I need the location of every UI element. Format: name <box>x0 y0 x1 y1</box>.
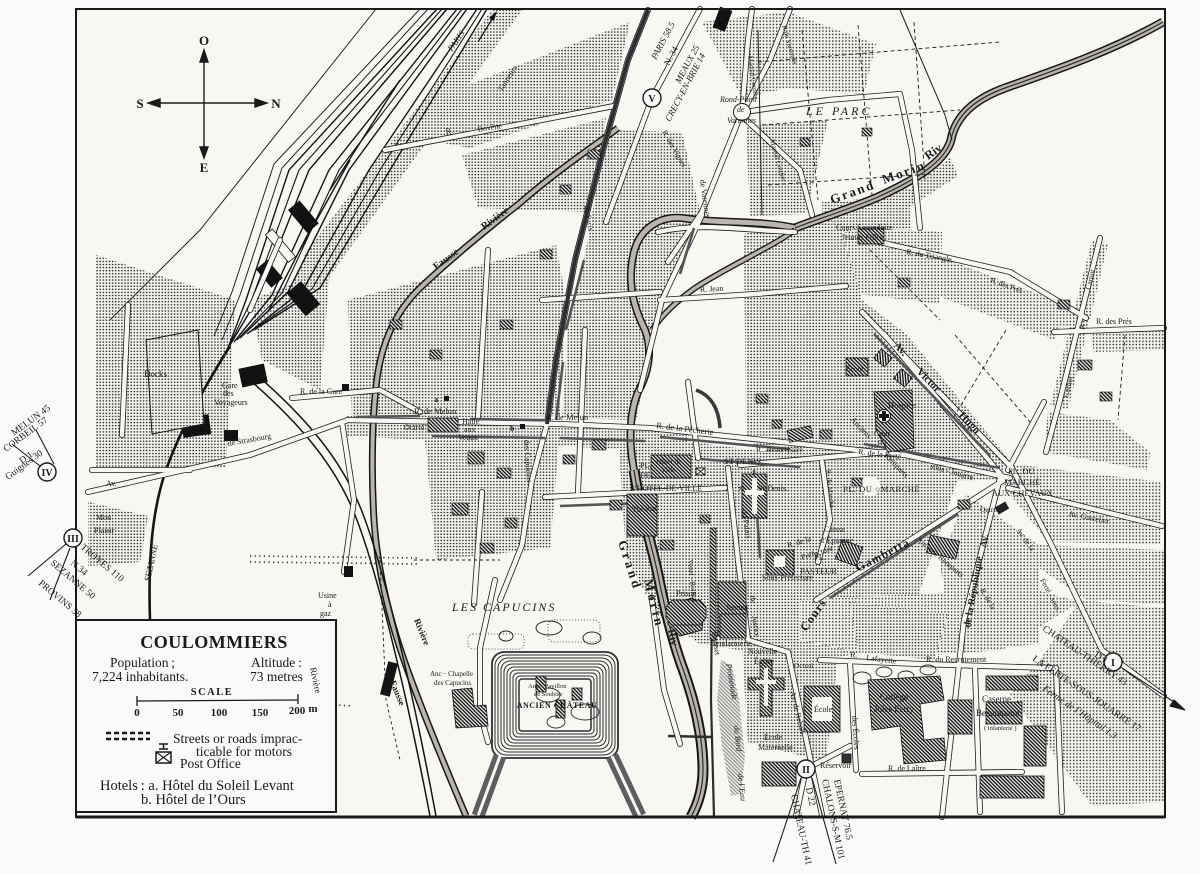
svg-text:St-Denis.: St-Denis. <box>758 484 788 493</box>
svg-text:R.: R. <box>445 126 454 136</box>
svg-text:ST DENIS: ST DENIS <box>724 456 761 466</box>
svg-text:à: à <box>328 600 332 609</box>
svg-text:E: E <box>200 160 209 175</box>
svg-text:150: 150 <box>252 707 269 719</box>
svg-text:Av.: Av. <box>106 479 117 488</box>
svg-text:III: III <box>67 534 79 545</box>
svg-text:Hospice: Hospice <box>888 400 916 410</box>
svg-text:R. des Prés: R. des Prés <box>1096 317 1132 326</box>
svg-text:Caisse: Caisse <box>824 525 845 534</box>
svg-text:200: 200 <box>289 705 306 717</box>
svg-text:Justice: Justice <box>726 603 748 612</box>
svg-text:Réservoir: Réservoir <box>820 761 851 770</box>
svg-text:IV: IV <box>41 468 53 479</box>
svg-text:b. Hôtel de l’Ours: b. Hôtel de l’Ours <box>141 792 246 808</box>
svg-text:R...Beaurepaire: R...Beaurepaire <box>756 445 804 454</box>
svg-text:gaz: gaz <box>320 609 332 618</box>
svg-text:du: du <box>878 437 886 446</box>
svg-text:Théâtre: Théâtre <box>632 504 657 514</box>
svg-text:Docks: Docks <box>144 369 167 379</box>
svg-text:Nouvelle: Nouvelle <box>748 647 778 656</box>
svg-text:Mon: Mon <box>96 513 111 522</box>
svg-text:R. de Laître: R. de Laître <box>888 764 926 773</box>
svg-text:Jeunes Filles: Jeunes Filles <box>842 233 883 242</box>
svg-text:Plaisir: Plaisir <box>94 526 115 535</box>
svg-text:Anc·· Chapelle: Anc·· Chapelle <box>430 670 473 678</box>
svg-text:LES CAPUCINS: LES CAPUCINS <box>451 600 556 614</box>
svg-text:ANCIEN CHÂTEAU: ANCIEN CHÂTEAU <box>517 700 598 710</box>
svg-text:50: 50 <box>173 707 185 719</box>
svg-text:( infanterie ): ( infanterie ) <box>984 725 1016 732</box>
svg-text:de: de <box>737 105 745 114</box>
svg-text:R. Jean: R. Jean <box>700 284 724 294</box>
svg-text:Église: Église <box>754 656 774 666</box>
svg-text:DE: DE <box>640 471 651 480</box>
svg-text:Jules Ferry: Jules Ferry <box>874 704 914 714</box>
svg-text:Octroi: Octroi <box>794 661 813 670</box>
svg-text:Post Office: Post Office <box>180 756 241 771</box>
svg-text:R. du Recrutement: R. du Recrutement <box>926 655 987 664</box>
svg-text:Veaux: Veaux <box>458 433 478 442</box>
svg-text:Collège: Collège <box>880 692 908 702</box>
svg-text:N: N <box>271 96 281 111</box>
svg-text:MARCHÉ: MARCHÉ <box>1004 477 1040 487</box>
svg-text:Ville: Ville <box>661 465 676 474</box>
svg-text:7,224 inhabitants.: 7,224 inhabitants. <box>92 669 188 684</box>
svg-text:Beaurepaire: Beaurepaire <box>976 708 1019 718</box>
svg-text:LE PARC: LE PARC <box>805 104 872 118</box>
svg-text:Sous-Préfecture: Sous-Préfecture <box>762 573 814 582</box>
svg-text:PL.: PL. <box>640 461 651 470</box>
svg-text:d’Épargne: d’Épargne <box>820 535 854 545</box>
svg-text:PL. DU ○MARCHÉ: PL. DU ○MARCHÉ <box>843 484 920 494</box>
svg-text:R.: R. <box>736 485 746 494</box>
svg-text:S: S <box>136 96 143 111</box>
svg-text:R. de la Gare: R. de la Gare <box>300 387 343 396</box>
svg-text:Population ;: Population ; <box>110 655 175 670</box>
svg-text:Voyageurs: Voyageurs <box>214 398 248 407</box>
svg-text:École: École <box>764 732 783 742</box>
svg-text:des: des <box>223 389 234 398</box>
svg-text:École: École <box>814 704 833 714</box>
svg-text:R. de Melun: R. de Melun <box>414 406 457 416</box>
svg-text:Anc·· Pavillon: Anc·· Pavillon <box>528 683 567 690</box>
svg-text:0: 0 <box>134 707 140 719</box>
svg-text:Caserne: Caserne <box>982 694 1011 704</box>
svg-text:PL. DU: PL. DU <box>1008 466 1034 476</box>
svg-text:100: 100 <box>211 707 228 719</box>
svg-text:Maternelle: Maternelle <box>758 743 793 752</box>
svg-text:O: O <box>199 33 209 48</box>
svg-text:Altitude :: Altitude : <box>251 655 302 670</box>
svg-text:AUX CHEVAUX: AUX CHEVAUX <box>992 488 1053 498</box>
svg-text:COULOMMIERS: COULOMMIERS <box>140 632 288 652</box>
svg-text:L’HOTEL-DE-VILLE: L’HOTEL-DE-VILLE <box>630 484 702 493</box>
svg-text:Varennes: Varennes <box>727 116 756 125</box>
svg-text:École: École <box>846 363 864 373</box>
svg-text:V: V <box>648 94 656 105</box>
svg-text:R. de Melun: R. de Melun <box>546 412 589 422</box>
svg-text:b: b <box>510 424 515 433</box>
svg-text:a: a <box>434 395 438 404</box>
svg-text:Octroi: Octroi <box>404 423 425 432</box>
svg-text:Octroi: Octroi <box>980 505 999 514</box>
svg-text:Cours Secondaire: Cours Secondaire <box>836 223 893 232</box>
svg-text:m: m <box>308 703 317 715</box>
svg-text:Usine: Usine <box>318 591 337 600</box>
svg-text:R.: R. <box>850 650 858 660</box>
svg-text:de Soubise: de Soubise <box>534 691 562 698</box>
svg-text:des Capucins: des Capucins <box>434 679 471 687</box>
svg-text:II: II <box>802 765 810 776</box>
svg-text:73 metres: 73 metres <box>250 669 303 684</box>
svg-text:Gendarmerie: Gendarmerie <box>710 639 752 648</box>
svg-text:SCALE: SCALE <box>191 687 234 698</box>
